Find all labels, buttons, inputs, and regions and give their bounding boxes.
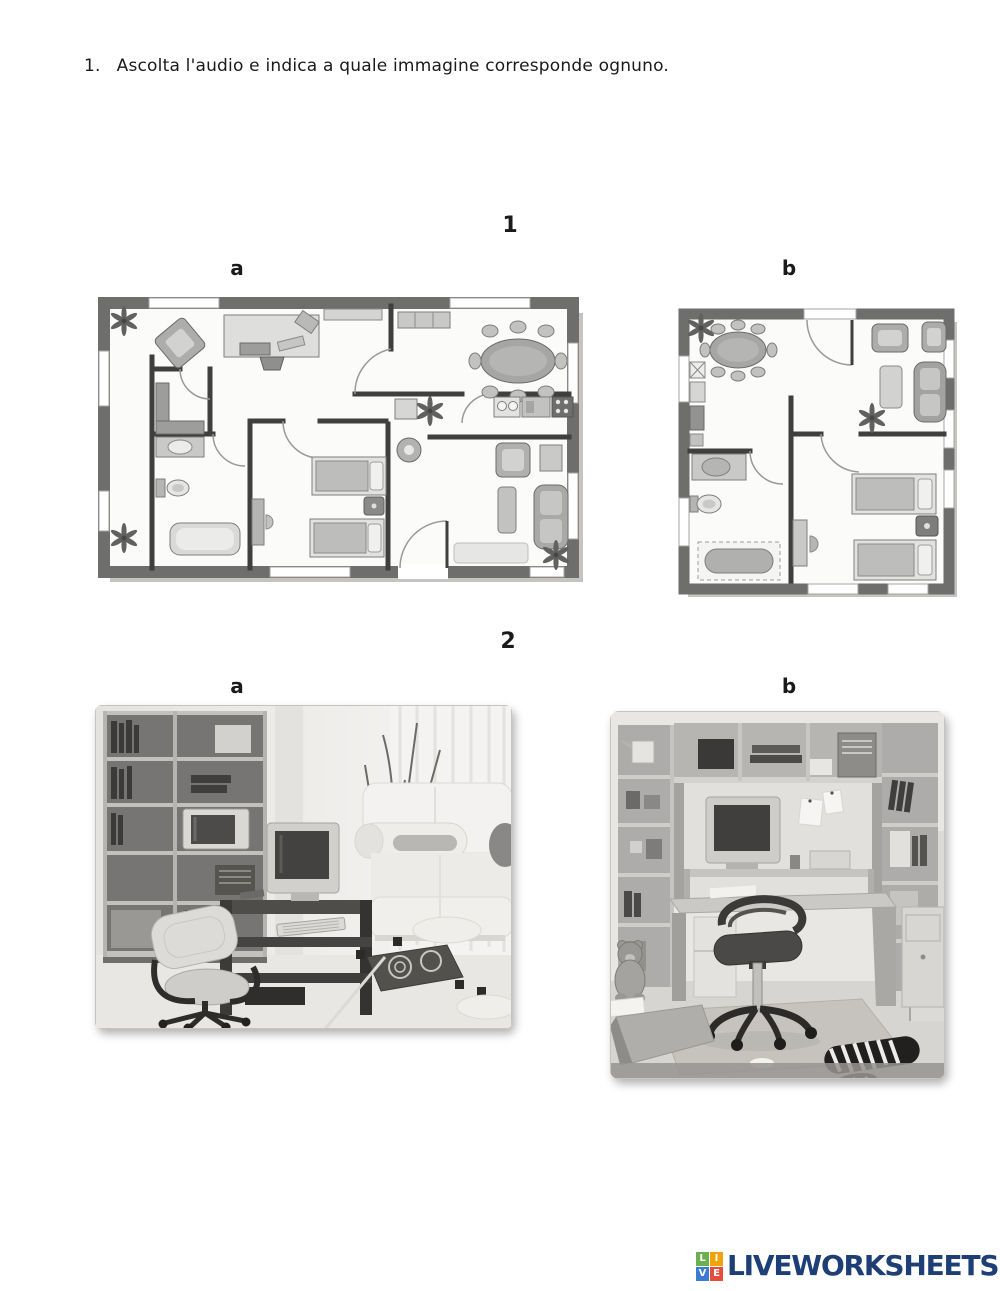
pen-cup — [790, 855, 800, 869]
computer-monitor — [260, 357, 284, 370]
bed — [854, 540, 936, 580]
logo-square-v: V — [696, 1267, 709, 1281]
box — [215, 725, 251, 753]
hall-table — [395, 399, 417, 419]
logo-square-i: I — [710, 1252, 723, 1266]
logo-square-e: E — [710, 1267, 723, 1281]
exercise2-label-a: a — [210, 674, 264, 698]
exercise1-number: 1 — [460, 213, 560, 238]
radio — [838, 733, 876, 777]
exercise2-image-b-study-room-photo[interactable] — [610, 711, 945, 1079]
instruction-number: 1. — [84, 56, 101, 76]
exercise1-label-b: b — [762, 256, 816, 280]
photo-a-graphic — [95, 705, 512, 1029]
shelf — [324, 309, 382, 320]
teddy-bear — [615, 941, 645, 1004]
photo-b-graphic — [610, 711, 945, 1079]
stove — [552, 397, 573, 417]
liveworksheets-logo-icon: L I V E — [696, 1252, 723, 1281]
bench — [498, 487, 516, 533]
crt-monitor — [267, 823, 339, 901]
paper-tray — [810, 851, 850, 869]
wardrobe — [252, 499, 264, 545]
kitchen — [494, 397, 573, 417]
entry-opening — [398, 564, 448, 579]
worksheet-page: 1.Ascolta l'audio e indica a quale immag… — [0, 0, 1000, 1291]
exercise1-label-a: a — [210, 256, 264, 280]
cushion — [413, 917, 481, 943]
bench — [880, 366, 902, 408]
side-table — [540, 445, 562, 471]
exercise2-label-b: b — [762, 674, 816, 698]
exercise2-number: 2 — [458, 629, 558, 654]
liveworksheets-logo-text: LIVEWORKSHEETS — [727, 1251, 998, 1281]
instruction: 1.Ascolta l'audio e indica a quale immag… — [84, 56, 804, 76]
sofa — [355, 783, 512, 941]
exercise1-image-b-floor-plan-small[interactable] — [674, 304, 959, 599]
keyboard — [240, 343, 270, 355]
instruction-text: Ascolta l'audio e indica a quale immagin… — [117, 56, 669, 76]
throw-blanket — [393, 835, 457, 851]
bed — [310, 519, 384, 557]
sideboard — [398, 312, 450, 328]
fridge — [690, 406, 704, 430]
cushion — [457, 995, 512, 1019]
stereo — [215, 865, 255, 895]
bed — [852, 474, 936, 514]
crt-monitor — [706, 797, 780, 871]
bed — [312, 457, 386, 495]
exercise2-image-a-living-room-photo[interactable] — [95, 705, 512, 1029]
liveworksheets-logo[interactable]: L I V E LIVEWORKSHEETS — [696, 1251, 998, 1281]
rug — [454, 543, 528, 563]
dressing-table — [793, 520, 807, 566]
logo-square-l: L — [696, 1252, 709, 1266]
floor-plan-b-graphic — [674, 304, 959, 599]
exercise1-image-a-floor-plan-large[interactable] — [92, 291, 585, 584]
tv — [183, 809, 249, 849]
floor-plan-a-graphic — [92, 291, 585, 584]
